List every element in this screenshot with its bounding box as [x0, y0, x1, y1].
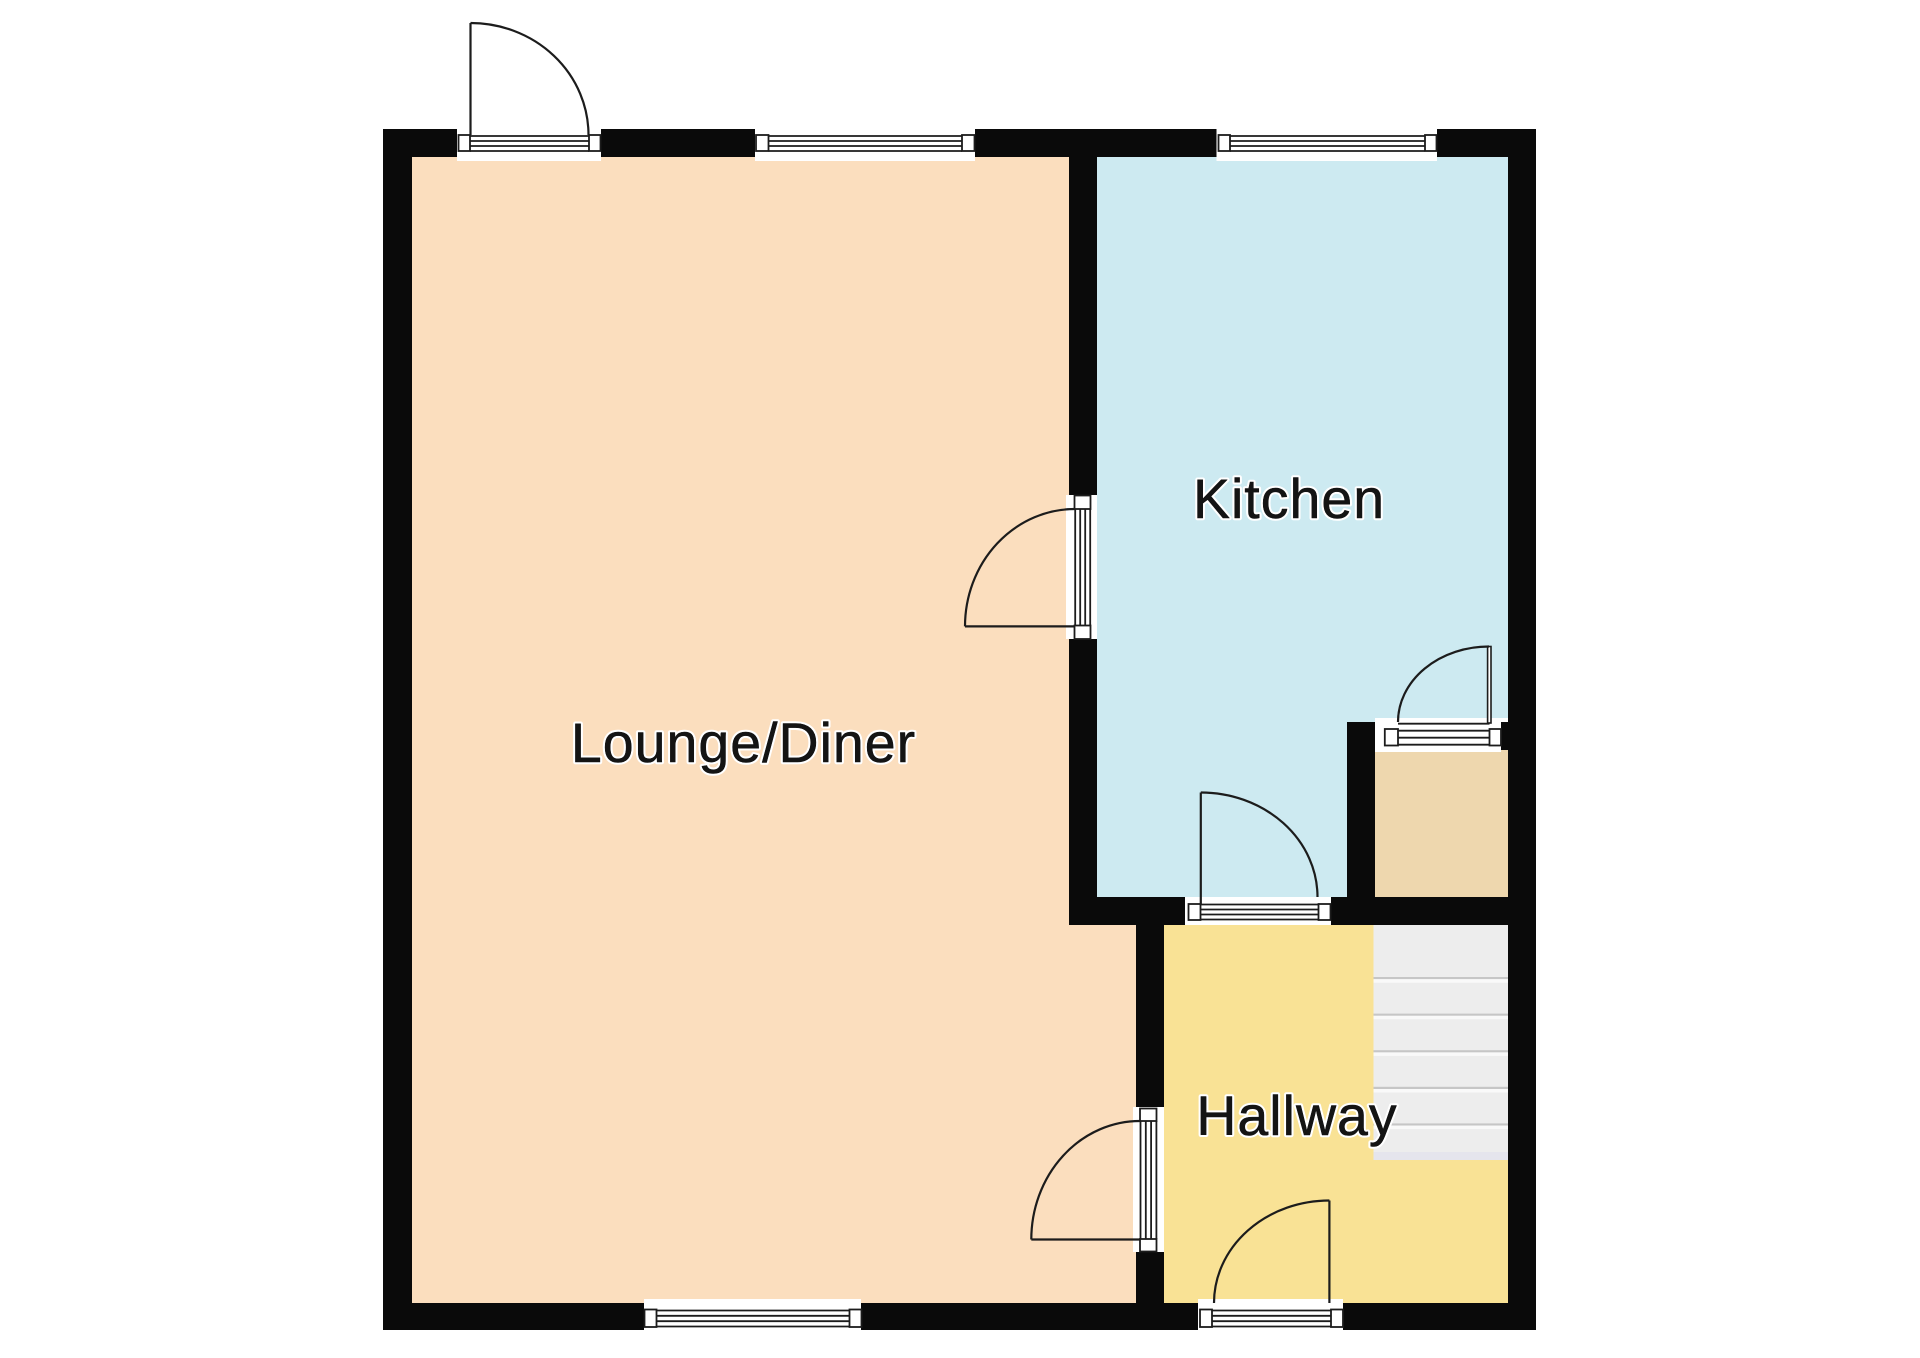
svg-text:Kitchen: Kitchen [1193, 468, 1385, 530]
svg-text:Hallway: Hallway [1196, 1085, 1397, 1147]
svg-text:Lounge/Diner: Lounge/Diner [571, 712, 916, 774]
